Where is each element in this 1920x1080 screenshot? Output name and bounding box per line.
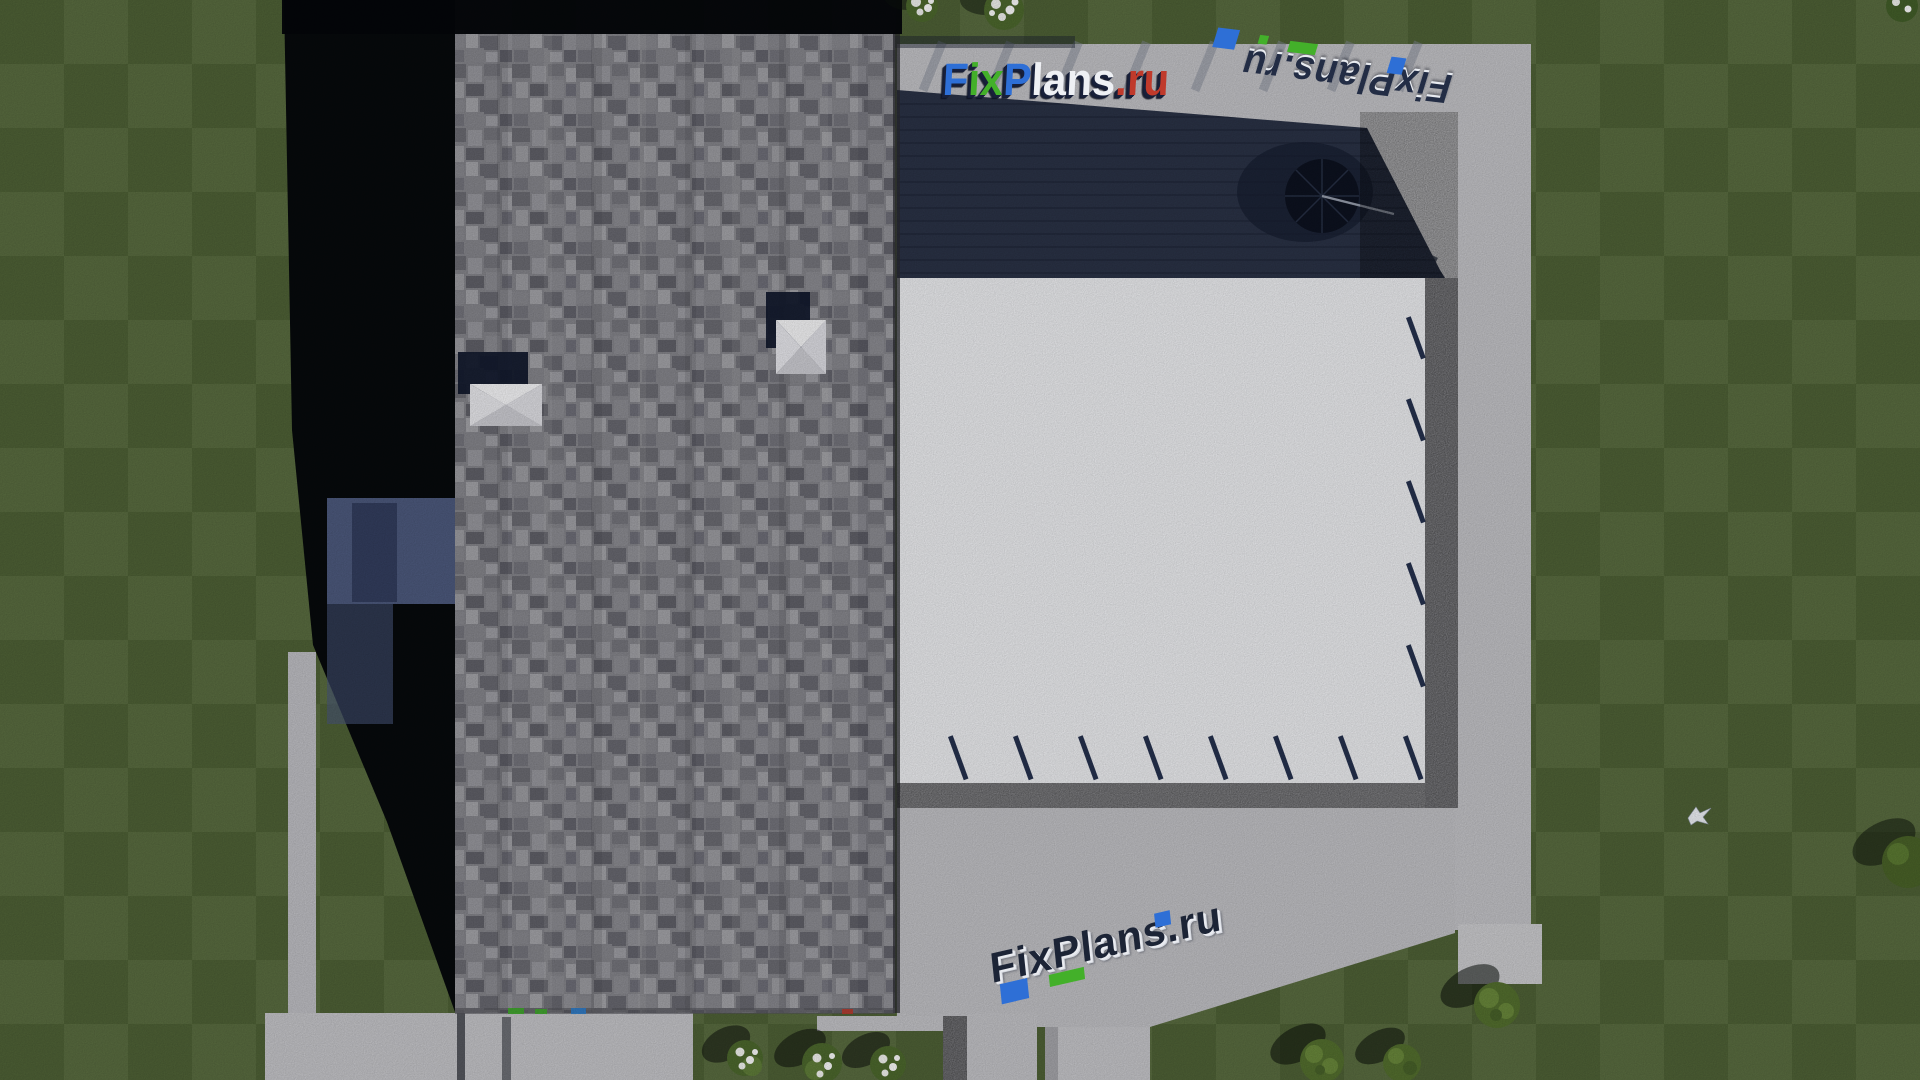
scene — [0, 0, 1920, 1080]
film-grain — [0, 0, 1920, 1080]
render-canvas: FixPlans.ru FixPlans.ru FixPlans.ru — [0, 0, 1920, 1080]
watermark-top: FixPlans.ru — [942, 57, 1171, 102]
watermark-letter-segment: lans — [1030, 54, 1117, 105]
accent-block-blue — [1212, 27, 1240, 49]
watermark-letter-segment: ix — [967, 54, 1005, 105]
watermark-letter-segment: .ru — [1114, 54, 1170, 105]
watermark-letter-segment: F — [942, 54, 970, 105]
watermark-letter-segment: P — [1002, 54, 1033, 105]
